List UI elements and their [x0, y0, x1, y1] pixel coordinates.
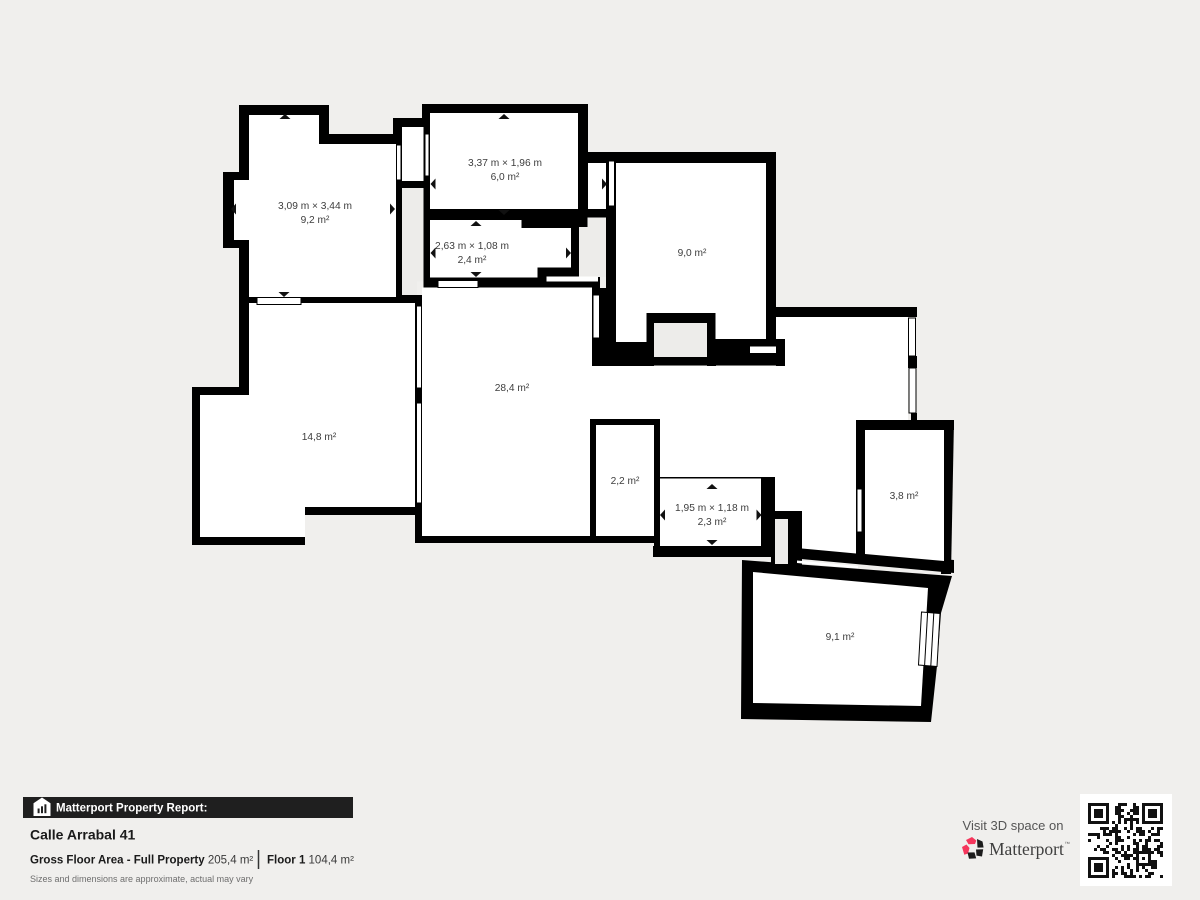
svg-text:9,0 m²: 9,0 m²	[678, 248, 707, 259]
svg-text:Sizes and dimensions are appro: Sizes and dimensions are approximate, ac…	[30, 874, 254, 884]
svg-text:9,1 m²: 9,1 m²	[826, 632, 855, 643]
svg-text:6,0 m²: 6,0 m²	[491, 172, 520, 183]
svg-text:Matterport Property Report:: Matterport Property Report:	[56, 803, 207, 815]
svg-text:3,37 m × 1,96 m: 3,37 m × 1,96 m	[468, 158, 542, 169]
svg-text:™: ™	[1065, 842, 1071, 848]
svg-text:Matterport: Matterport	[989, 839, 1064, 859]
svg-text:3,8 m²: 3,8 m²	[890, 491, 919, 502]
svg-text:Visit 3D space on: Visit 3D space on	[963, 818, 1064, 833]
svg-text:2,3 m²: 2,3 m²	[698, 517, 727, 528]
svg-text:9,2 m²: 9,2 m²	[301, 215, 330, 226]
svg-text:Floor 1 104,4 m²: Floor 1 104,4 m²	[267, 855, 354, 867]
svg-text:1,95 m × 1,18 m: 1,95 m × 1,18 m	[675, 503, 749, 514]
svg-text:Calle Arrabal 41: Calle Arrabal 41	[30, 827, 136, 843]
svg-text:3,09 m × 3,44 m: 3,09 m × 3,44 m	[278, 201, 352, 212]
svg-text:28,4 m²: 28,4 m²	[495, 383, 530, 394]
svg-text:14,8 m²: 14,8 m²	[302, 432, 337, 443]
svg-text:2,4 m²: 2,4 m²	[458, 255, 487, 266]
svg-text:2,2 m²: 2,2 m²	[611, 476, 640, 487]
svg-text:2,63 m × 1,08 m: 2,63 m × 1,08 m	[435, 241, 509, 252]
svg-text:Gross Floor Area - Full Proper: Gross Floor Area - Full Property 205,4 m…	[30, 855, 253, 867]
